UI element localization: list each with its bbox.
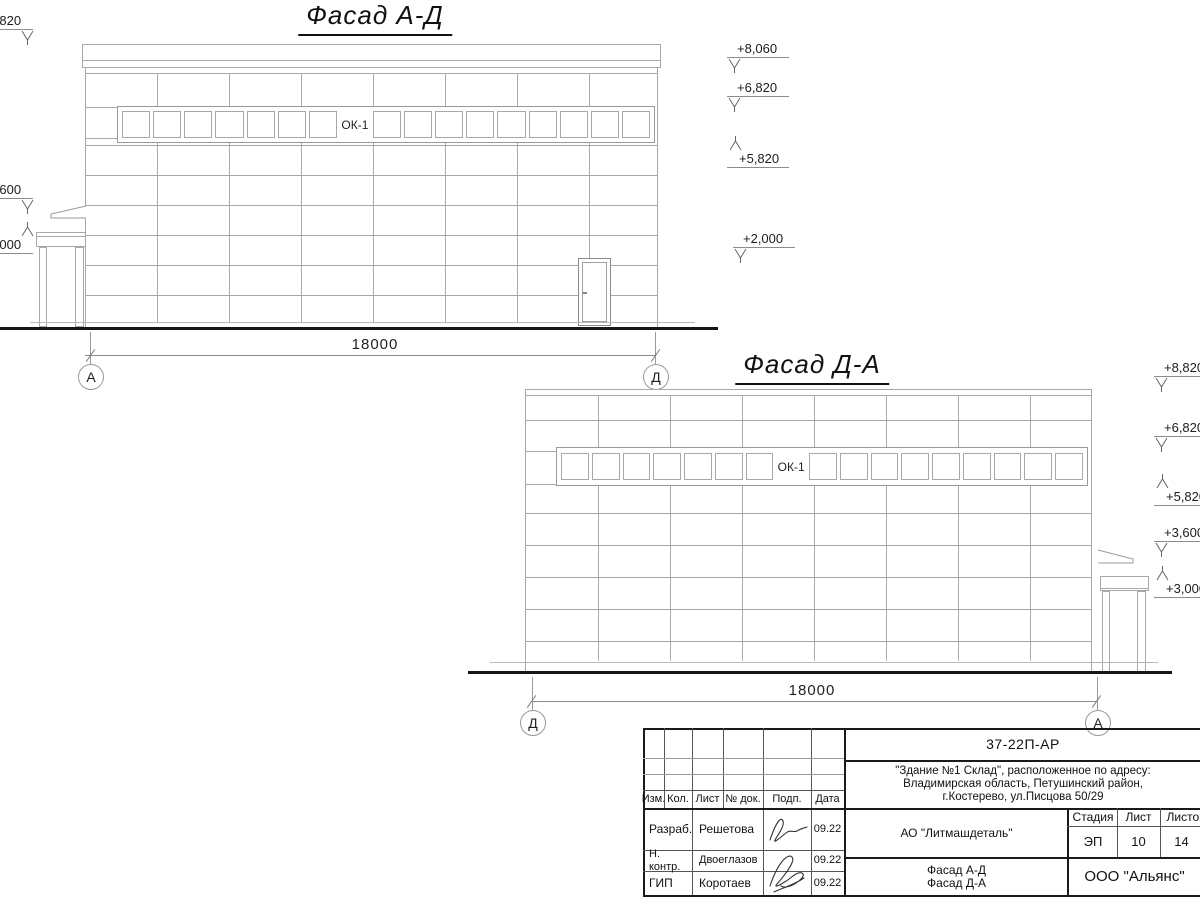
company-name: АО "Литмашдеталь"	[846, 810, 1067, 857]
title-block-border	[643, 895, 1200, 897]
drawing-title: Фасад А-Д Фасад Д-А	[846, 858, 1067, 895]
col-header-kol: Кол.	[664, 790, 692, 808]
col-header-podp: Подп.	[763, 790, 811, 808]
object-address-line: "Здание №1 Склад", расположенное по адре…	[895, 765, 1150, 778]
object-address: "Здание №1 Склад", расположенное по адре…	[846, 761, 1200, 808]
signature	[762, 848, 812, 896]
stage-value: ЭП	[1069, 826, 1117, 857]
organization-name: ООО "Альянс"	[1069, 858, 1200, 895]
document-number: 37-22П-АР	[846, 728, 1200, 760]
row-role: ГИП	[645, 871, 692, 895]
sheet-header: Лист	[1117, 808, 1160, 826]
title-block-line	[643, 758, 844, 759]
row-name: Двоеглазов	[695, 850, 763, 871]
drawing-title-line: Фасад А-Д	[927, 864, 986, 877]
col-header-doc: № док.	[723, 790, 763, 808]
row-role: Разраб.	[645, 808, 692, 850]
sheets-header: Листов	[1160, 808, 1200, 826]
col-header-data: Дата	[811, 790, 844, 808]
title-block-line	[692, 728, 693, 895]
title-block: Изм. Кол. Лист № док. Подп. Дата Разраб.…	[0, 0, 1200, 900]
row-date: 09.22	[811, 871, 844, 895]
row-date: 09.22	[811, 808, 844, 850]
object-address-line: Владимирская область, Петушинский район,	[903, 778, 1143, 791]
sheets-value: 14	[1160, 826, 1200, 857]
row-role: Н. контр.	[645, 850, 692, 871]
signature	[764, 812, 810, 848]
row-name: Решетова	[695, 808, 763, 850]
object-address-line: г.Костерево, ул.Писцова 50/29	[943, 791, 1104, 804]
row-name: Коротаев	[695, 871, 763, 895]
sheet-value: 10	[1117, 826, 1160, 857]
drawing-title-line: Фасад Д-А	[927, 877, 986, 890]
row-date: 09.22	[811, 850, 844, 871]
col-header-list: Лист	[692, 790, 723, 808]
col-header-izm: Изм.	[643, 790, 664, 808]
drawing-sheet: Фасад А-Д ОК-1	[0, 0, 1200, 900]
stage-header: Стадия	[1069, 808, 1117, 826]
title-block-line	[643, 774, 844, 775]
